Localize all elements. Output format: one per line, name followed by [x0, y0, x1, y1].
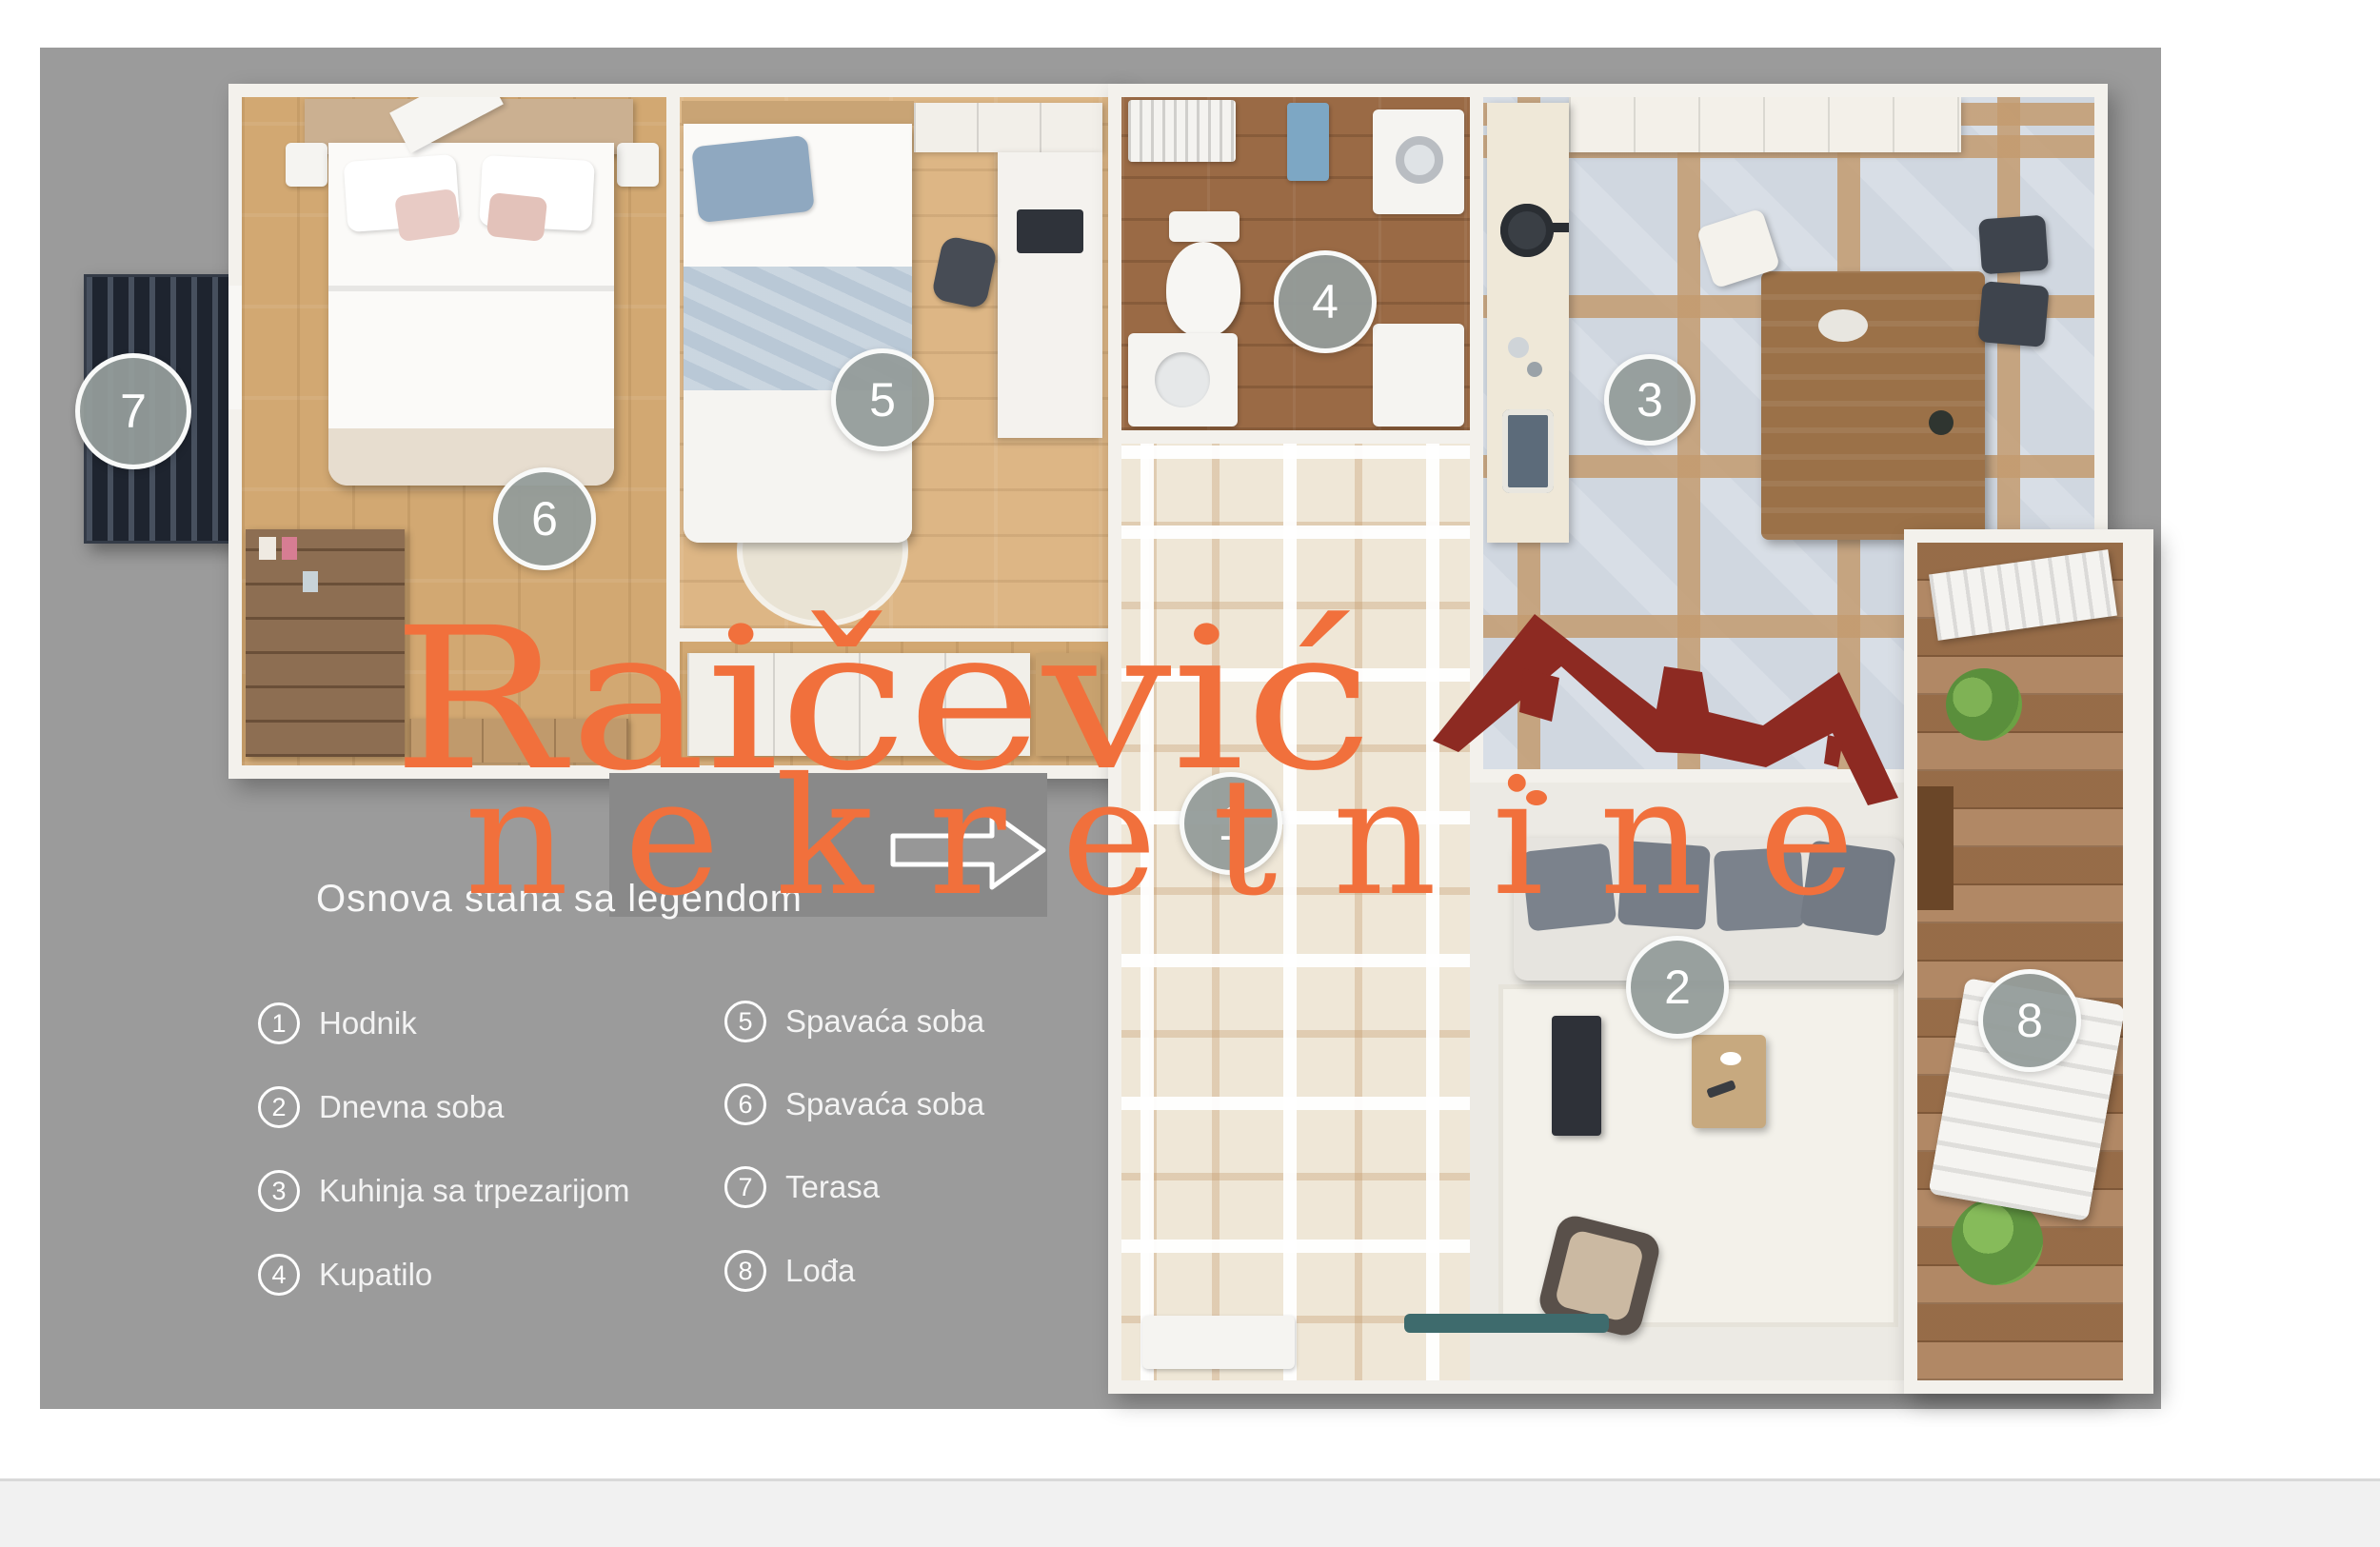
plan-badge-2: 2 — [1626, 936, 1729, 1039]
sofa-cushion — [1714, 847, 1805, 932]
dining-chair-dark — [1978, 215, 2049, 275]
dresser — [409, 719, 628, 763]
badge-number: 2 — [1664, 963, 1691, 1011]
kitchen-counter — [1487, 103, 1569, 543]
plan-badge-6: 6 — [493, 467, 596, 570]
towel — [1287, 103, 1329, 181]
legend-item-kupatilo: 4 Kupatilo — [258, 1253, 432, 1297]
toilet-bowl — [1166, 242, 1240, 337]
legend-label: Spavaća soba — [785, 1003, 984, 1040]
legend-item-kuhinja: 3 Kuhinja sa trpezarijom — [258, 1169, 630, 1213]
laptop — [1017, 209, 1083, 253]
radiator — [1128, 100, 1236, 162]
legend-circle: 1 — [258, 1002, 300, 1044]
plan-badge-3: 3 — [1604, 354, 1696, 446]
table-decor — [1720, 1052, 1741, 1065]
legend-label: Kupatilo — [319, 1257, 432, 1293]
sofa-cushion — [1617, 841, 1711, 930]
footer-strip — [0, 1481, 2380, 1547]
badge-number: 7 — [120, 387, 147, 435]
legend-label: Dnevna soba — [319, 1089, 504, 1125]
legend-item-spavaca-soba-6: 6 Spavaća soba — [724, 1082, 984, 1126]
plan-badge-4: 4 — [1274, 250, 1377, 353]
chair-pad — [1554, 1229, 1645, 1322]
blanket-fold — [328, 286, 614, 291]
legend-item-spavaca-soba-5: 5 Spavaća soba — [724, 1000, 984, 1043]
legend-item-lodja: 8 Lođa — [724, 1249, 855, 1293]
planter-box — [1917, 786, 1954, 910]
book — [259, 537, 276, 560]
legend-circle: 5 — [724, 1001, 766, 1042]
bathroom-vanity — [1128, 333, 1238, 426]
accent-pillow — [486, 192, 547, 242]
pillow — [691, 135, 815, 223]
book — [282, 537, 297, 560]
room-living — [1470, 783, 1917, 1380]
tv — [1552, 1016, 1601, 1136]
nightstand-right — [617, 143, 659, 187]
room-hallway — [1121, 444, 1470, 1380]
washing-machine — [1373, 109, 1464, 214]
headboard — [682, 101, 914, 126]
coffee-table — [1692, 1035, 1766, 1128]
double-bed — [328, 143, 614, 486]
legend-item-terasa: 7 Terasa — [724, 1165, 880, 1209]
loggia-bench — [1929, 549, 2117, 641]
legend-label: Kuhinja sa trpezarijom — [319, 1173, 630, 1209]
kitchen-item — [1527, 362, 1542, 377]
toilet-tank — [1169, 211, 1240, 242]
legend-circle: 3 — [258, 1170, 300, 1212]
badge-number: 8 — [2016, 997, 2043, 1044]
badge-number: 3 — [1636, 376, 1663, 424]
building-bedroom-wing — [228, 84, 1121, 779]
pan-handle — [1550, 223, 1569, 232]
badge-number: 6 — [531, 495, 558, 543]
kitchen-sink — [1502, 409, 1554, 493]
single-bed — [684, 124, 912, 543]
legend-circle: 7 — [724, 1166, 766, 1208]
legend-label: Hodnik — [319, 1005, 417, 1041]
doormat — [1404, 1314, 1609, 1333]
bottle — [1929, 410, 1954, 435]
badge-number: 4 — [1312, 278, 1339, 326]
room-closet-area — [680, 642, 1108, 765]
right-arrow-icon — [876, 800, 1057, 904]
cabinet — [1036, 653, 1101, 756]
legend-item-dnevna-soba: 2 Dnevna soba — [258, 1085, 504, 1129]
desk-chair — [931, 235, 999, 310]
dining-chair-dark — [1977, 281, 2049, 347]
plan-badge-1: 1 — [1180, 772, 1282, 875]
accent-pillow — [394, 188, 461, 242]
cooktop-pan — [1500, 204, 1554, 257]
room-bedroom-6 — [242, 97, 666, 765]
legend-label: Lođa — [785, 1253, 855, 1289]
plan-badge-5: 5 — [831, 348, 934, 451]
sliding-wardrobe — [687, 653, 1030, 756]
terrace-door-opening — [228, 286, 242, 409]
legend-label: Terasa — [785, 1169, 880, 1205]
entry-console — [1142, 1316, 1295, 1369]
legend-circle: 2 — [258, 1086, 300, 1128]
legend-circle: 8 — [724, 1250, 766, 1292]
book — [303, 571, 318, 592]
plan-badge-8: 8 — [1978, 969, 2081, 1072]
legend-circle: 6 — [724, 1083, 766, 1125]
badge-number: 1 — [1218, 800, 1244, 847]
sofa-cushion — [1799, 840, 1896, 937]
desk — [998, 152, 1102, 438]
plate — [1818, 309, 1868, 342]
kitchen-item — [1508, 337, 1529, 358]
badge-number: 5 — [869, 376, 896, 424]
plan-title: Osnova stana sa legendom — [316, 878, 803, 921]
plan-badge-7: 7 — [75, 353, 191, 469]
legend-circle: 4 — [258, 1254, 300, 1296]
sink — [1155, 352, 1210, 407]
legend-item-hodnik: 1 Hodnik — [258, 1002, 417, 1045]
shower-cabinet — [1373, 324, 1464, 426]
screenshot-root: 1 2 3 4 5 6 7 8 Osnova stana sa legendom… — [0, 0, 2380, 1547]
legend-label: Spavaća soba — [785, 1086, 984, 1122]
room-loggia — [1917, 543, 2123, 1380]
plant-icon — [1946, 668, 2022, 741]
washer-door — [1396, 136, 1443, 184]
dining-table — [1761, 271, 1985, 540]
kitchen-upper-cabinets — [1569, 97, 1961, 152]
building-loggia — [1904, 529, 2153, 1394]
remote — [1706, 1080, 1736, 1099]
wardrobe — [914, 103, 1102, 152]
nightstand-left — [286, 143, 327, 187]
bookcase — [246, 529, 405, 757]
sofa-cushion — [1521, 843, 1616, 931]
